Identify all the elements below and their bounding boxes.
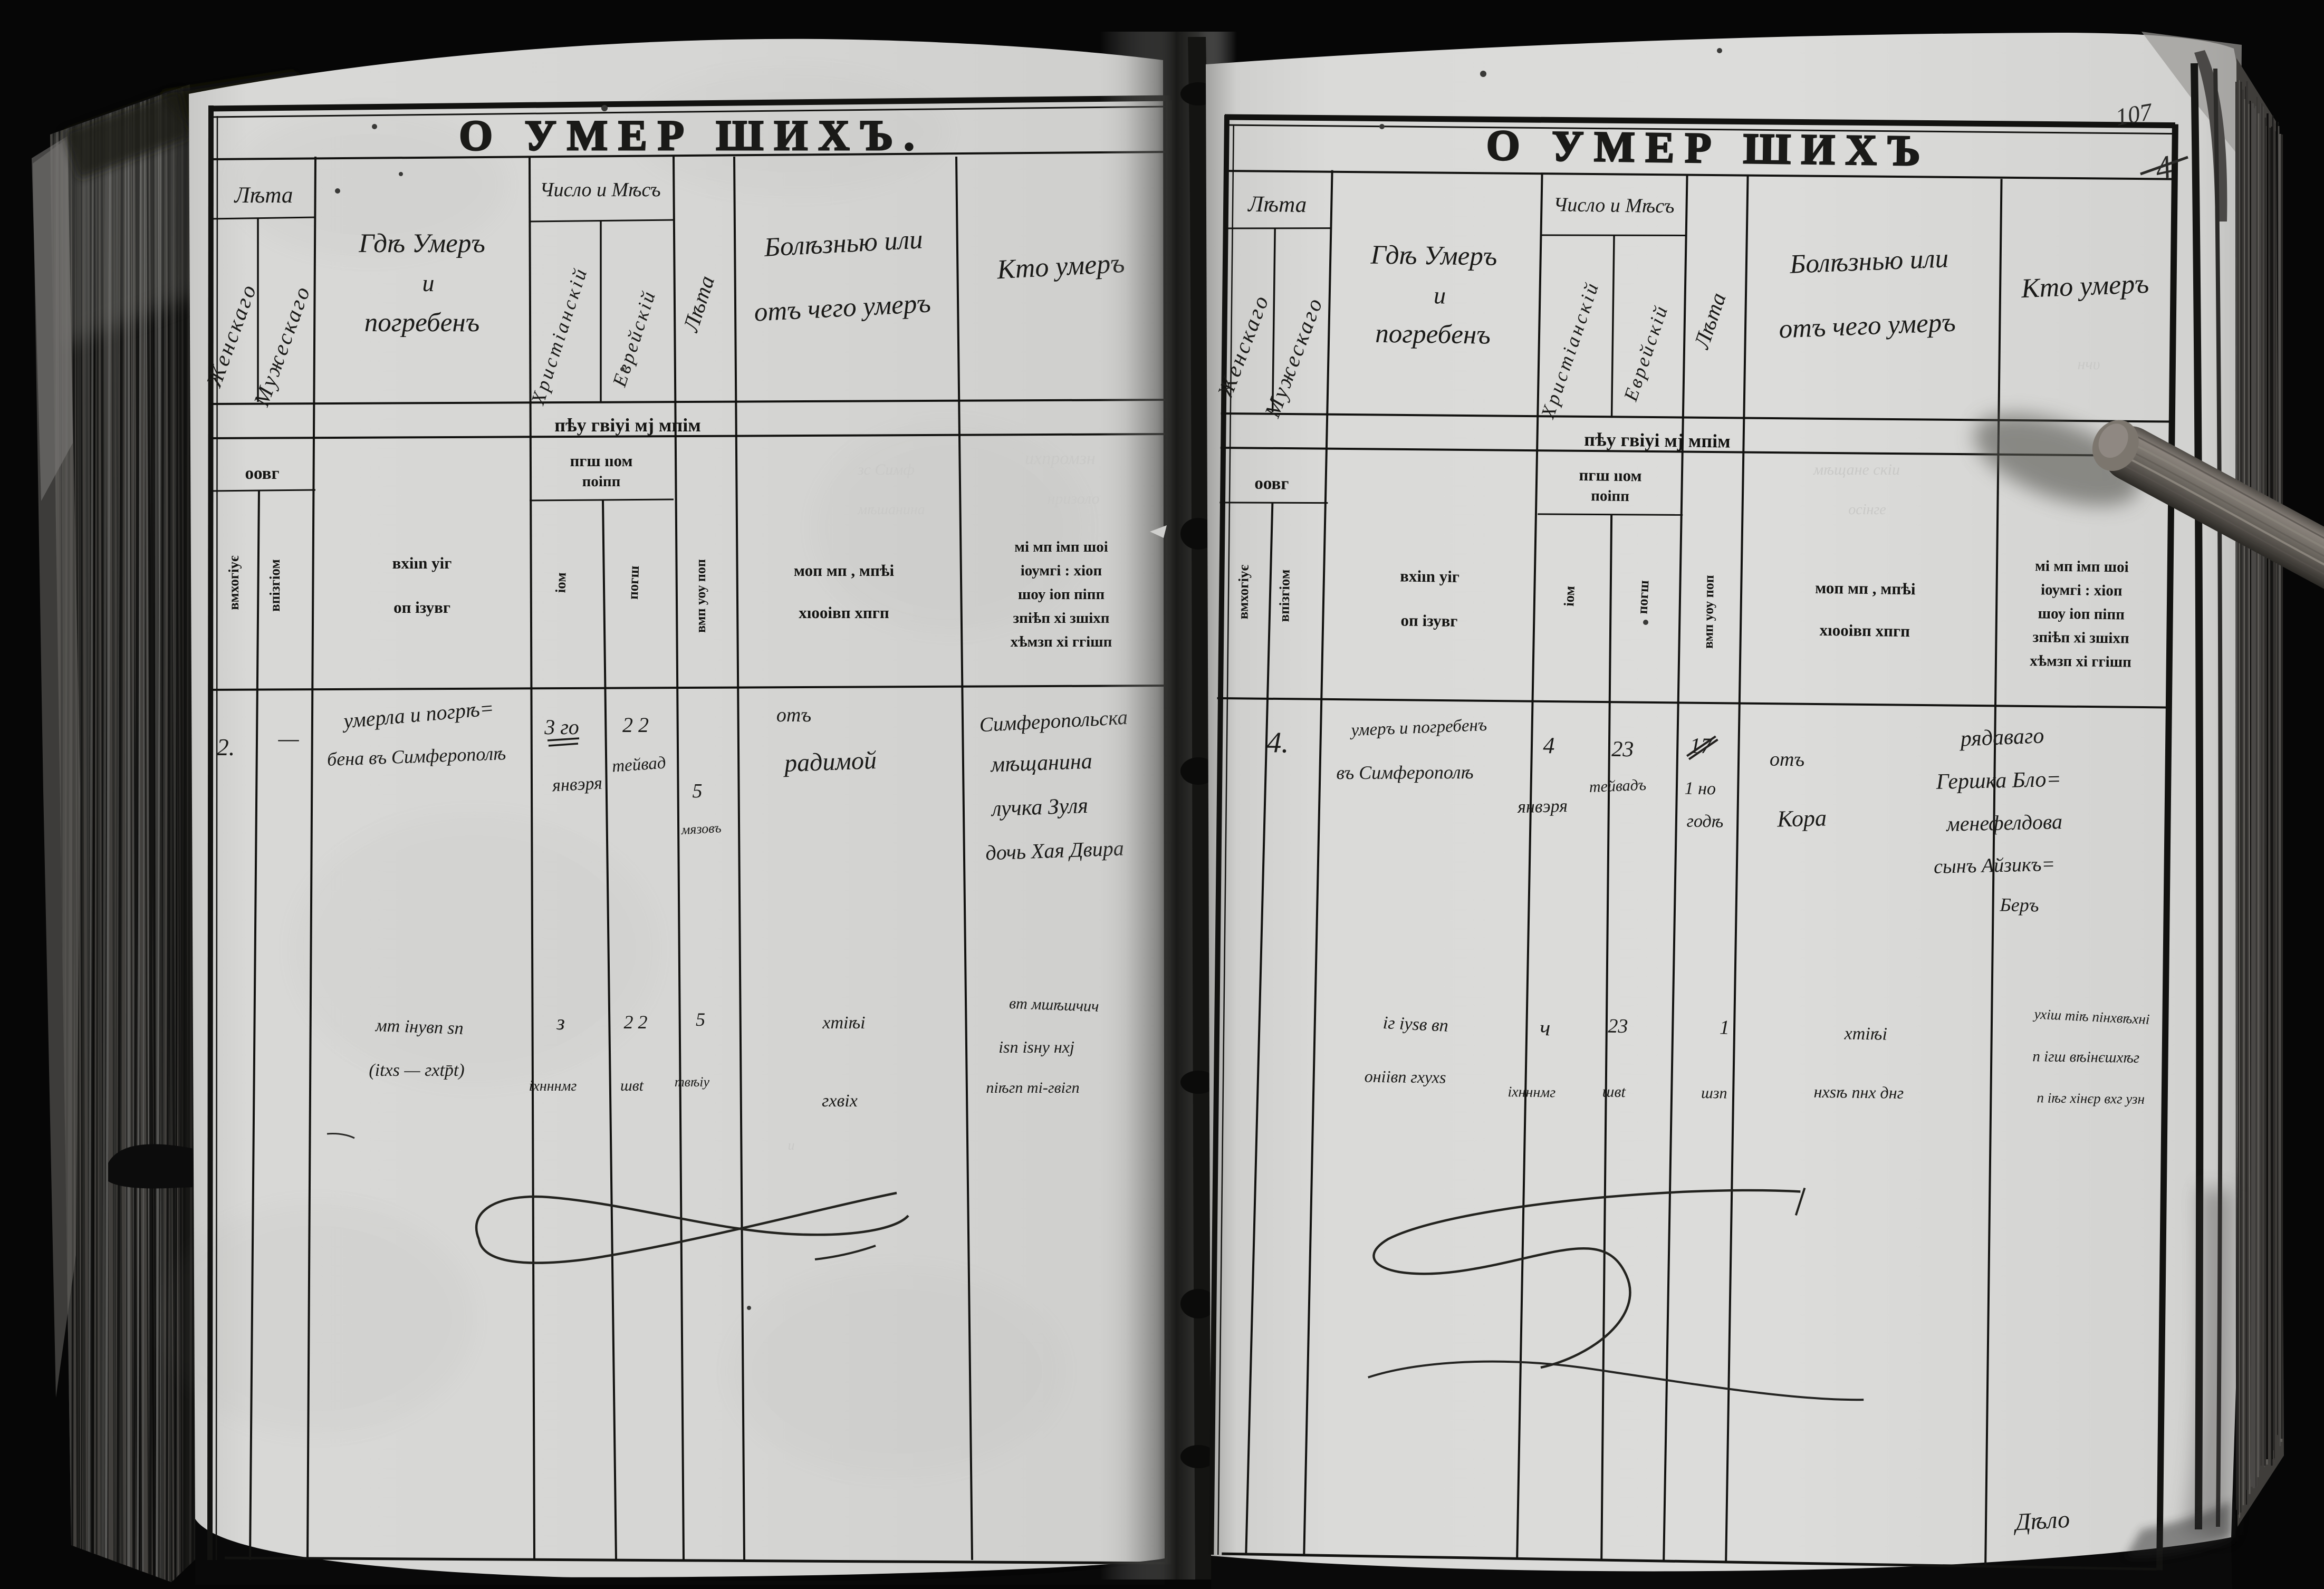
svg-text:хıооівп хпгп: хıооівп хпгп bbox=[1819, 621, 1910, 640]
svg-text:тейвадъ: тейвадъ bbox=[1589, 776, 1646, 796]
svg-text:мязовъ: мязовъ bbox=[680, 820, 722, 837]
svg-text:іхнннмг: іхнннмг bbox=[529, 1078, 577, 1094]
svg-text:вмхогіує: вмхогіує bbox=[1235, 564, 1251, 619]
svg-text:моп мп , мпѣі: моп мп , мпѣі bbox=[794, 561, 895, 580]
svg-text:О УМЕР ШИХЪ.: О УМЕР ШИХЪ. bbox=[459, 111, 925, 159]
svg-text:тейвад: тейвад bbox=[611, 754, 667, 776]
svg-text:хѣмзп хі ггішп: хѣмзп хі ггішп bbox=[2030, 652, 2131, 671]
svg-text:іоумгі : хіоп: іоумгі : хіоп bbox=[2041, 581, 2123, 599]
svg-text:3 го: 3 го bbox=[544, 715, 579, 739]
svg-text:отъ: отъ bbox=[1770, 748, 1805, 771]
svg-text:ч: ч bbox=[1540, 1016, 1551, 1041]
svg-text:мѣщанина: мѣщанина bbox=[990, 749, 1093, 777]
svg-text:Кто умеръ: Кто умеръ bbox=[2020, 269, 2149, 304]
svg-text:п іѣг хінєр вхг узн: п іѣг хінєр вхг узн bbox=[2037, 1090, 2145, 1107]
svg-text:поіпп: поіпп bbox=[582, 473, 621, 490]
svg-text:шоу іоп піпп: шоу іоп піпп bbox=[2038, 605, 2125, 623]
svg-text:вхіın уіг: вхіın уіг bbox=[392, 554, 452, 572]
svg-text:5: 5 bbox=[696, 1009, 705, 1030]
svg-text:впізгіом: впізгіом bbox=[1276, 570, 1292, 622]
svg-text:твѣіу: твѣіу bbox=[675, 1074, 710, 1090]
svg-text:іом: іом bbox=[1561, 585, 1578, 606]
svg-text:пѣу гвіуі мј мпім: пѣу гвіуі мј мпім bbox=[554, 415, 700, 436]
svg-text:моп мп , мпѣі: моп мп , мпѣі bbox=[1815, 579, 1916, 598]
svg-text:мт інувп ѕп: мт інувп ѕп bbox=[374, 1016, 464, 1038]
svg-text:швt: швt bbox=[1602, 1083, 1626, 1101]
svg-text:зс Симф: зс Симф bbox=[857, 461, 915, 478]
svg-text:іѕп іѕну нхј: іѕп іѕну нхј bbox=[998, 1037, 1074, 1056]
svg-text:пгш ııом: пгш ııом bbox=[570, 451, 632, 470]
svg-text:оп ізувг: оп ізувг bbox=[1400, 611, 1457, 630]
svg-text:мі мп імп шоі: мі мп імп шоі bbox=[1014, 538, 1108, 555]
svg-text:осінге: осінге bbox=[1848, 502, 1886, 518]
svg-text:іоумгі : хіоп: іоумгі : хіоп bbox=[1021, 562, 1102, 579]
svg-text:хıооівп хпгп: хıооівп хпгп bbox=[799, 603, 889, 622]
svg-text:пгш ııом: пгш ııом bbox=[1579, 466, 1642, 485]
svg-text:23: 23 bbox=[1611, 737, 1634, 762]
svg-text:2.: 2. bbox=[217, 734, 235, 760]
svg-text:п ігш вѣінєшхѣг: п ігш вѣінєшхѣг bbox=[2032, 1048, 2139, 1066]
svg-text:іхнннмг: іхнннмг bbox=[1507, 1084, 1555, 1101]
svg-text:Гершка Бло=: Гершка Бло= bbox=[1935, 767, 2061, 794]
svg-text:зпіѣп хі зшіхп: зпіѣп хі зшіхп bbox=[1013, 610, 1110, 627]
svg-text:Число и Мѣсъ: Число и Мѣсъ bbox=[1553, 194, 1675, 217]
svg-text:отъ: отъ bbox=[776, 704, 811, 726]
svg-text:погш: погш bbox=[625, 565, 642, 600]
svg-text:оніівп гхухѕ: оніівп гхухѕ bbox=[1365, 1067, 1446, 1087]
svg-text:оовг: оовг bbox=[245, 464, 280, 483]
svg-text:янвэря: янвэря bbox=[551, 774, 603, 796]
svg-text:швt: швt bbox=[620, 1077, 644, 1094]
svg-text:мі мп імп шоі: мі мп імп шоі bbox=[2035, 557, 2129, 575]
svg-text:радимой: радимой bbox=[782, 746, 877, 777]
svg-text:Дѣло: Дѣло bbox=[2012, 1506, 2070, 1536]
svg-text:вт мшѣшчич: вт мшѣшчич bbox=[1009, 995, 1099, 1015]
svg-text:пѣу гвіуі мј мпім: пѣу гвіуі мј мпім bbox=[1584, 429, 1731, 452]
svg-text:2 2: 2 2 bbox=[624, 1012, 648, 1033]
svg-text:нхѕѣ пнх днг: нхѕѣ пнх днг bbox=[1813, 1082, 1904, 1102]
svg-text:рядаваго: рядаваго bbox=[1958, 724, 2044, 751]
svg-text:Лѣта: Лѣта bbox=[234, 183, 293, 208]
svg-text:нчυ: нчυ bbox=[2078, 355, 2100, 373]
svg-text:4: 4 bbox=[1543, 733, 1555, 758]
svg-text:5: 5 bbox=[693, 780, 703, 802]
svg-text:мѣщане скіи: мѣщане скіи bbox=[1813, 461, 1900, 478]
svg-text:Лѣта: Лѣта bbox=[1247, 192, 1307, 217]
svg-text:погребенъ: погребенъ bbox=[1375, 319, 1491, 350]
svg-text:и: и bbox=[788, 1138, 795, 1153]
svg-text:и: и bbox=[422, 269, 435, 296]
svg-text:О УМЕР ШИХЪ: О УМЕР ШИХЪ bbox=[1486, 121, 1931, 175]
svg-text:погребенъ: погребенъ bbox=[364, 308, 479, 338]
svg-text:погш: погш bbox=[1635, 580, 1652, 614]
svg-text:хтіѣі: хтіѣі bbox=[822, 1013, 865, 1033]
svg-text:сынъ Айзикъ=: сынъ Айзикъ= bbox=[1934, 853, 2056, 878]
svg-text:шоу іоп піпп: шоу іоп піпп bbox=[1018, 586, 1105, 603]
svg-text:хтіѣі: хтіѣі bbox=[1843, 1024, 1887, 1044]
svg-text:(іtxѕ — гхtp̄t): (іtxѕ — гхtp̄t) bbox=[369, 1061, 464, 1080]
svg-text:оп ізувг: оп ізувг bbox=[393, 598, 450, 617]
svg-text:годѣ: годѣ bbox=[1686, 812, 1723, 832]
svg-text:и: и bbox=[1434, 282, 1446, 309]
svg-text:Гдѣ Умеръ: Гдѣ Умеръ bbox=[358, 229, 485, 258]
svg-text:4.: 4. bbox=[1266, 726, 1289, 759]
svg-text:23: 23 bbox=[1608, 1015, 1628, 1037]
svg-text:іом: іом bbox=[552, 572, 569, 593]
svg-text:1 но: 1 но bbox=[1684, 779, 1716, 799]
svg-text:з: з bbox=[556, 1010, 565, 1034]
svg-text:піѣгп ті-гвігп: піѣгп ті-гвігп bbox=[986, 1079, 1079, 1096]
svg-text:зпіѣп хі зшіхп: зпіѣп хі зшіхп bbox=[2032, 629, 2129, 647]
svg-text:поіпп: поіпп bbox=[1591, 487, 1629, 505]
svg-text:1: 1 bbox=[1720, 1016, 1730, 1038]
svg-text:вмхогіує: вмхогіує bbox=[226, 555, 242, 610]
svg-text:лучка Зуля: лучка Зуля bbox=[990, 794, 1088, 821]
svg-text:Болѣзнью или: Болѣзнью или bbox=[1789, 244, 1949, 280]
svg-text:вмп уоу поп: вмп уоу поп bbox=[693, 559, 708, 633]
svg-text:Кора: Кора bbox=[1776, 805, 1827, 832]
svg-text:Число и Мѣсъ: Число и Мѣсъ bbox=[540, 179, 660, 201]
svg-text:Гдѣ Умеръ: Гдѣ Умеръ bbox=[1370, 240, 1497, 272]
svg-text:оовг: оовг bbox=[1254, 474, 1289, 494]
svg-text:впізгіом: впізгіом bbox=[267, 559, 283, 612]
svg-text:2 2: 2 2 bbox=[622, 713, 649, 737]
svg-text:іг іуѕв вп: іг іуѕв вп bbox=[1382, 1013, 1449, 1036]
svg-text:мѣшанина: мѣшанина bbox=[857, 502, 925, 518]
svg-text:ихпромзн: ихпромзн bbox=[1025, 449, 1096, 468]
svg-text:Беръ: Беръ bbox=[1999, 894, 2039, 916]
svg-text:—: — bbox=[277, 726, 299, 752]
svg-text:хѣмзп хі ггішп: хѣмзп хі ггішп bbox=[1011, 633, 1112, 650]
svg-text:нризоло: нризоло bbox=[1048, 490, 1100, 507]
svg-text:въ Симферополѣ: въ Симферополѣ bbox=[1336, 762, 1473, 783]
svg-text:шзп: шзп bbox=[1701, 1084, 1727, 1102]
svg-text:вхіın уіг: вхіın уіг bbox=[1400, 566, 1459, 585]
svg-text:янвэря: янвэря bbox=[1517, 796, 1568, 817]
svg-text:менефелдова: менефелдова bbox=[1945, 810, 2063, 836]
svg-text:гхвіх: гхвіх bbox=[822, 1091, 858, 1111]
svg-text:вмп уоу поп: вмп уоу поп bbox=[1701, 575, 1717, 649]
